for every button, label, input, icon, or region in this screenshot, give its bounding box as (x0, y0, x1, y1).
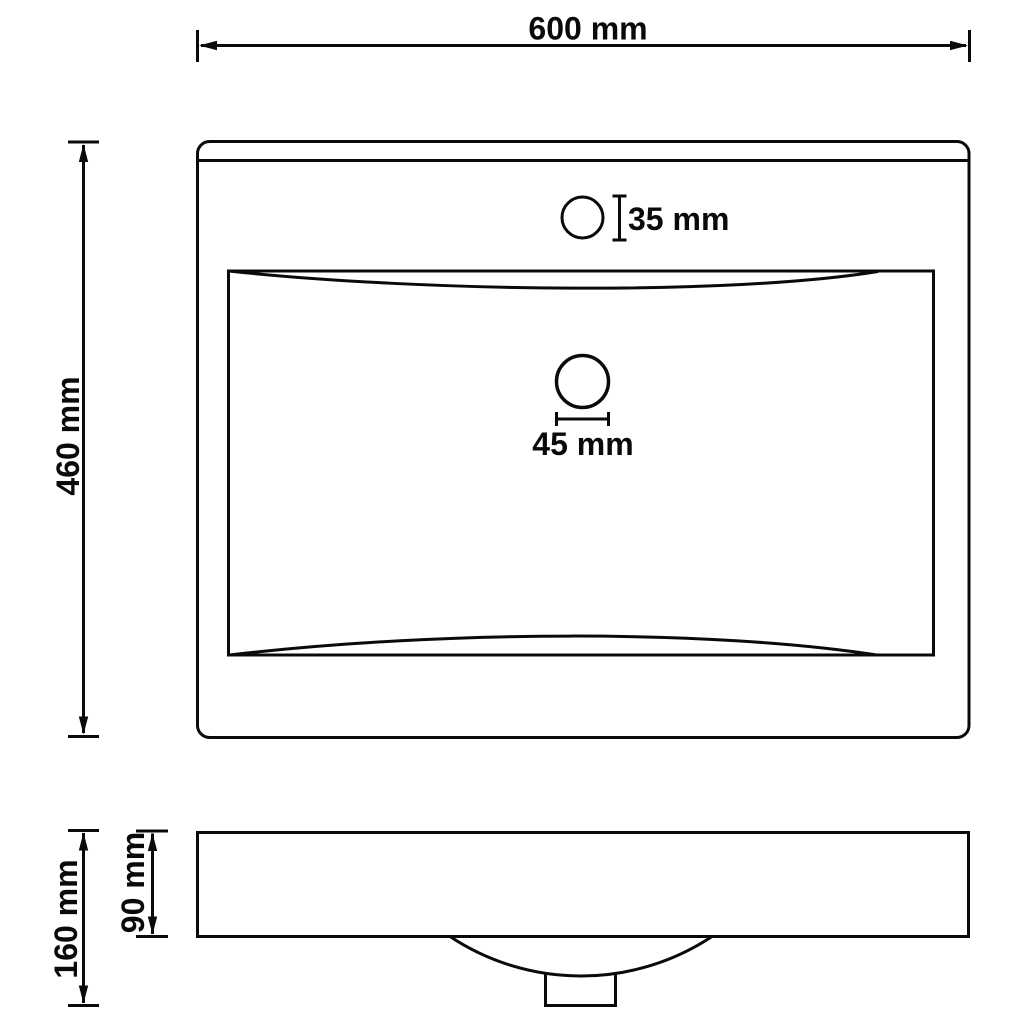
svg-text:90 mm: 90 mm (115, 832, 151, 933)
svg-text:600 mm: 600 mm (528, 11, 647, 47)
svg-text:45 mm: 45 mm (532, 426, 633, 462)
svg-text:160 mm: 160 mm (48, 859, 84, 978)
svg-text:460 mm: 460 mm (50, 376, 86, 495)
svg-text:35 mm: 35 mm (628, 201, 729, 237)
